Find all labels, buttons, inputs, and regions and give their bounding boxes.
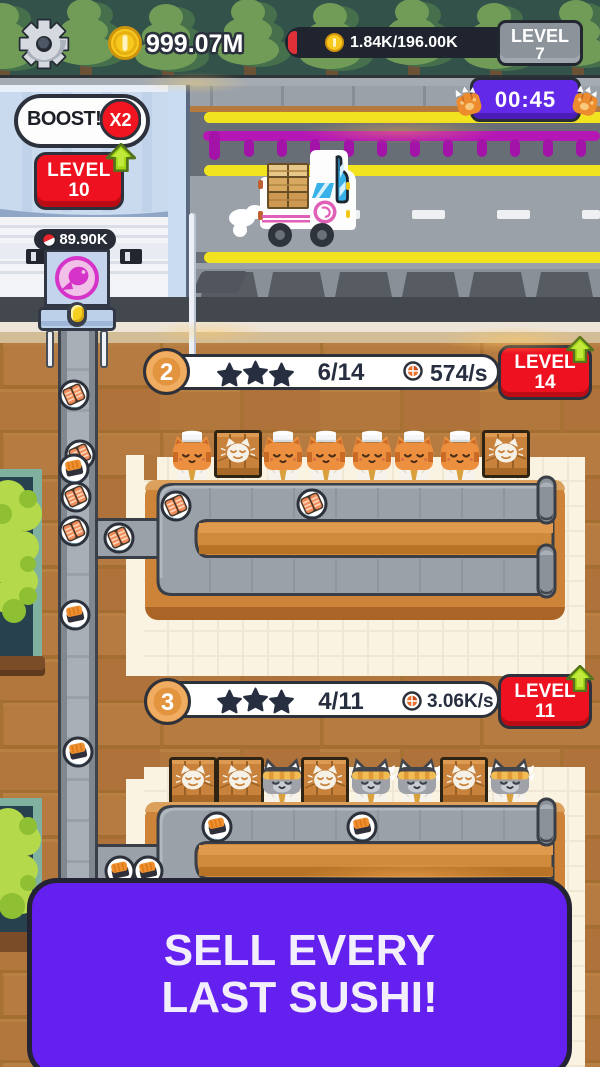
- svg-text:X2: X2: [109, 110, 131, 130]
- svg-text:3: 3: [161, 689, 174, 716]
- svg-text:2: 2: [160, 359, 173, 386]
